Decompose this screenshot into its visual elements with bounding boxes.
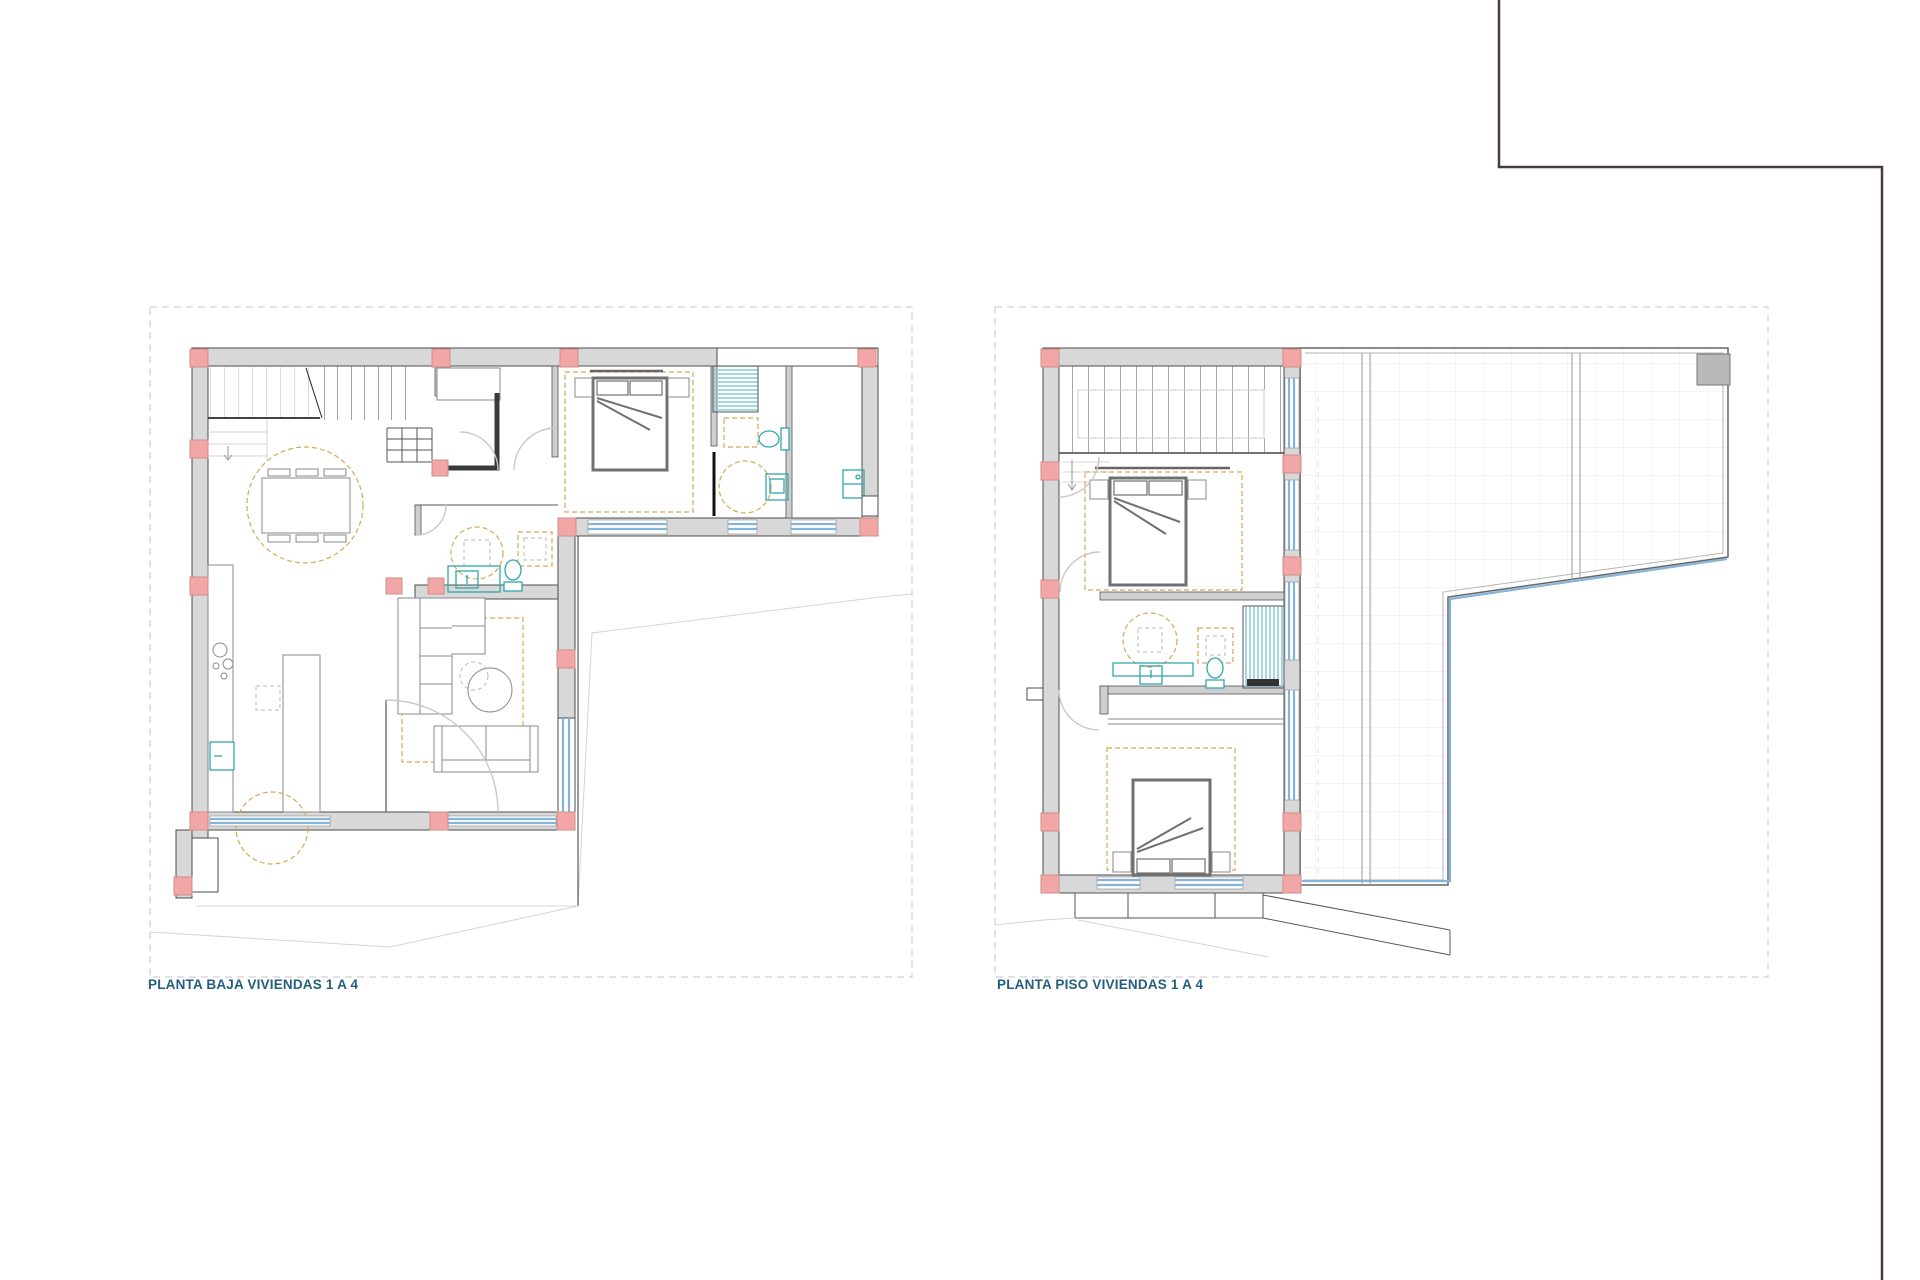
- upper-floor-label: PLANTA PISO VIVIENDAS 1 A 4: [997, 977, 1203, 992]
- ensuite-toilet: [759, 428, 789, 450]
- toilet: [1206, 658, 1224, 688]
- entry-steps: [995, 893, 1450, 957]
- bath-cabinet: [724, 418, 758, 447]
- vanity-stool: [719, 461, 771, 513]
- staircase: [208, 366, 432, 462]
- loveseat: [434, 726, 538, 772]
- stair-flight-upper: [208, 366, 320, 418]
- wc-toilet: [504, 560, 522, 591]
- laundry-basket: [1123, 613, 1177, 667]
- door-arc: [460, 432, 498, 470]
- nightstand: [1212, 852, 1230, 872]
- hall-hook-wall: [432, 393, 497, 468]
- winder-stairs: [387, 428, 432, 462]
- door-arc: [1059, 690, 1099, 730]
- ground-floor-plan: [150, 307, 912, 977]
- stair-landing-steps: [208, 420, 267, 460]
- staircase: [1059, 366, 1284, 490]
- nightstand: [575, 378, 592, 397]
- first-floor-plan: [995, 307, 1768, 977]
- bedroom: [514, 371, 693, 512]
- stair-flight-lower: [320, 366, 415, 420]
- drawing-sheet: PLANTA BAJA VIVIENDAS 1 A 4 PLANTA PISO …: [0, 0, 1920, 1280]
- door-arc: [514, 428, 556, 470]
- kitchen-counter: [208, 565, 233, 812]
- ensuite-bathroom: [713, 366, 789, 516]
- exterior-walls: [176, 348, 878, 898]
- terrain-line: [995, 918, 1075, 925]
- bedroom-bottom: [1059, 690, 1235, 875]
- terrain-line: [1078, 920, 1268, 957]
- shower-tray: [518, 532, 552, 566]
- kitchen-island: [283, 655, 320, 812]
- ensuite-shower: [713, 366, 758, 412]
- nightstand: [1188, 480, 1206, 499]
- porch-cabinet: [843, 470, 864, 498]
- kitchen-sink: [210, 742, 234, 770]
- sheet-frame: [1499, 0, 1882, 1280]
- sink: [1113, 663, 1193, 684]
- kitchen-cabinet: [256, 686, 280, 710]
- hall-closet: [437, 368, 500, 400]
- nightstand: [1113, 852, 1131, 872]
- nightstand: [668, 378, 689, 397]
- living-room: [386, 598, 538, 812]
- chimney-block: [1697, 354, 1730, 385]
- stair-direction-arrow: [224, 446, 232, 460]
- stair-direction-arrow: [1068, 460, 1076, 490]
- shower-drain: [1247, 679, 1279, 686]
- access-ramp: [1263, 895, 1450, 955]
- shower: [1243, 606, 1284, 688]
- closet-front: [1108, 719, 1284, 724]
- nightstand: [1090, 480, 1108, 499]
- terrace-deck: [1300, 348, 1728, 885]
- ground-floor-label: PLANTA BAJA VIVIENDAS 1 A 4: [148, 977, 358, 992]
- dining-table: [262, 478, 350, 533]
- bathroom: [1113, 606, 1284, 688]
- floor-plan-drawing: [0, 0, 1920, 1280]
- stair-flight: [1059, 366, 1284, 453]
- terrace: [1300, 348, 1730, 885]
- bedroom-top: [1059, 457, 1242, 592]
- door-arc: [1060, 552, 1100, 592]
- dining-area: [247, 447, 363, 563]
- door-opening: [862, 496, 878, 516]
